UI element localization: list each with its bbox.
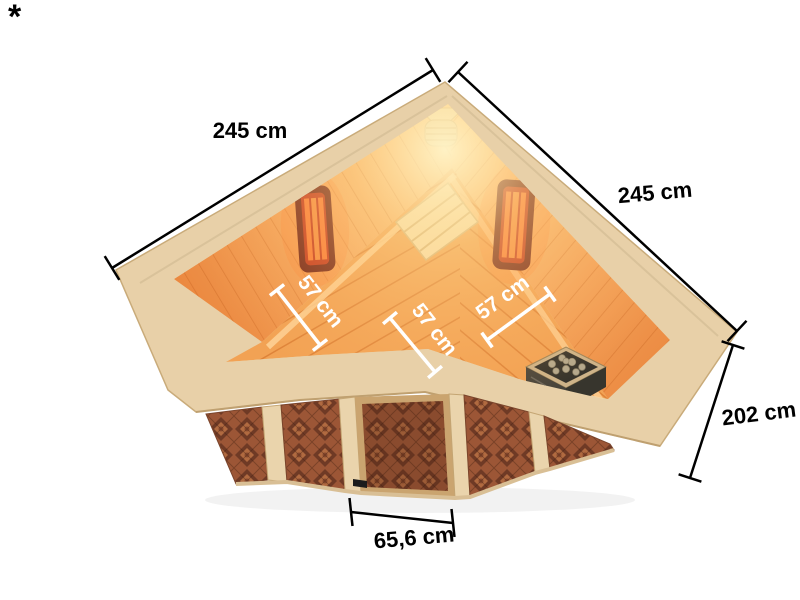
glass-pane-front-right <box>464 395 535 497</box>
glass-pane-front-left <box>281 399 345 491</box>
glass-pane-left-angled <box>206 407 268 484</box>
height-label: 202 cm <box>720 397 797 431</box>
door-width-label: 65,6 cm <box>373 522 456 554</box>
width-right-label: 245 cm <box>617 177 694 208</box>
product-illustration: * <box>0 0 800 600</box>
width-left-label: 245 cm <box>213 118 288 143</box>
door-glass-tint <box>362 401 448 491</box>
door <box>353 394 455 498</box>
sauna-dimension-diagram: 57 cm 57 cm 57 cm 245 cm <box>0 0 800 600</box>
